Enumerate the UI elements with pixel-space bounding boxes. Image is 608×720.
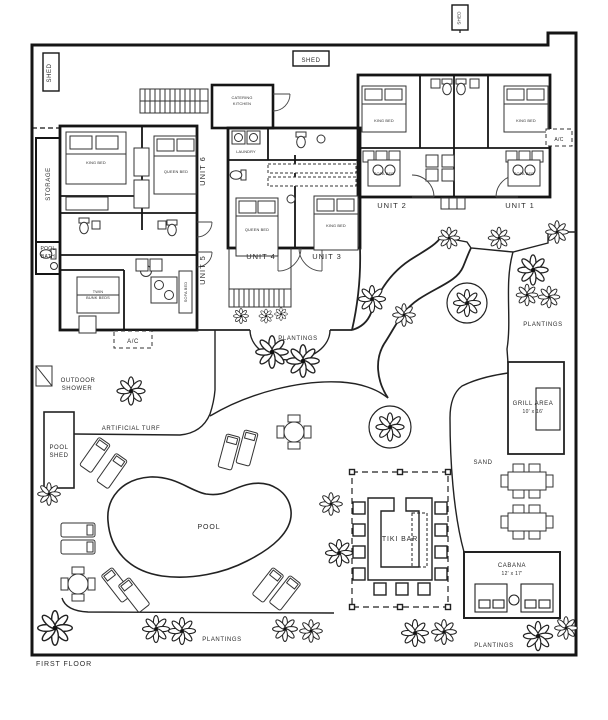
lounger-icon [61,540,95,554]
king-bed-label-u1: KING BED [516,118,536,123]
cabana-structure [464,552,560,618]
bar-stool [353,524,365,536]
floor-plan-page: SHED SHED SHED CATERING KITCHEN STORAGE … [0,0,608,720]
flower-icon [143,616,170,643]
bar-stool [418,583,430,595]
toilet-icon [442,79,452,95]
first-floor-title: FIRST FLOOR [36,661,92,668]
pool-bath-label-2: BATH [41,254,55,260]
plantings-label-center: PLANTINGS [278,336,317,342]
closet-rod [268,177,356,186]
lounger-icon [61,523,95,537]
flower-icon [38,483,61,506]
plantings-label-bottom-center: PLANTINGS [202,637,241,643]
pool-bath-label-1: POOL [40,246,55,252]
sink-icon [317,135,325,143]
unit-6-label: UNIT 6 [198,156,207,186]
artificial-turf-label: ARTIFICIAL TURF [102,426,161,432]
side-table [509,595,519,605]
flower-icon [555,617,578,640]
sofa-bed-label-u1: SOFA BED [514,171,534,176]
tree-flower-icon [376,413,404,441]
flower-icon [359,286,386,313]
sink-icon [51,263,58,270]
plantings-label-bottom-right: PLANTINGS [474,643,513,649]
bar-stool [435,502,447,514]
toilet-icon [79,218,89,234]
flower-icon [300,620,323,643]
bar-stool [435,568,447,580]
bar-stool [435,546,447,558]
bunk-bed-label-2: BUNK BEDS [86,295,110,300]
round-table-icon [277,415,311,449]
table [151,277,177,303]
flower-icon [326,540,353,567]
catering-kitchen-label-1: CATERING [231,95,252,100]
bar-stool [353,568,365,580]
bar-stool [374,583,386,595]
flower-icon [38,611,73,646]
flower-icon [320,493,343,516]
flower-icon [117,377,145,405]
bar-stool [353,546,365,558]
toilet-icon [230,170,246,180]
lounger-icon [236,430,258,466]
dresser [66,197,108,210]
tree-flower-icon [454,290,481,317]
cabana-dims-label: 12' x 17' [501,571,522,577]
flower-icon [402,620,429,647]
ac-label-left: A/C [127,339,139,345]
lounger-icon [218,434,240,470]
shed-top-label: SHED [301,58,320,64]
ac-label-right: A/C [554,137,563,143]
flower-icon [438,227,460,249]
walkway-edge-b [378,248,471,398]
catering-kitchen-room [212,85,273,128]
flower-icon [393,304,416,327]
porch-steps [441,198,465,209]
pool-shed-label-2: SHED [49,453,68,459]
laundry-label: LAUNDRY [236,149,256,154]
walkway-arc [210,382,388,416]
cabana-label: CABANA [498,563,526,569]
sand-label: SAND [473,460,492,466]
flower-icon [518,255,548,285]
dining-table-icon [501,464,553,498]
grill-dims-label: 10' x 16' [522,409,543,415]
flower-icon [538,286,560,308]
bar-stool [435,524,447,536]
flower-icon [233,308,248,323]
closet-rod [268,164,356,173]
unit-4-label: UNIT 4 [246,252,276,261]
plantings-label-right: PLANTINGS [523,322,562,328]
flower-icon [259,309,273,323]
tiki-bar-label: TIKI BAR [382,536,418,543]
catering-kitchen-label-2: KITCHEN [233,101,251,106]
pool-shed-label-1: POOL [49,445,68,451]
dining-table-icon [501,505,553,539]
flower-icon [169,618,196,645]
toilet-icon [456,79,466,95]
flower-icon [287,345,319,377]
bar-stool [396,583,408,595]
grill-area-label: GRILL AREA [513,401,554,407]
queen-bed-label-u4: QUEEN BED [245,227,269,232]
flower-icon [488,227,510,249]
bunk-bed-label-1: TWIN [93,289,104,294]
toilet-icon [296,132,306,148]
king-bed-label-u3: KING BED [326,223,346,228]
flower-icon [523,621,552,650]
stairs [140,89,208,113]
king-bed-label-u2: KING BED [374,118,394,123]
bar-stool [353,502,365,514]
flower-icon [432,620,457,645]
flower-icon [516,284,538,306]
flower-icon [275,308,288,321]
round-table-icon [61,567,95,601]
plantings-strip-edge [62,598,334,613]
shed-right-label: SHED [457,11,462,25]
sofa-bed-label-u2: SOFA BED [374,171,394,176]
floor-plan: SHED SHED SHED CATERING KITCHEN STORAGE … [0,0,608,720]
outdoor-shower [36,366,52,386]
outdoor-shower-label-2: SHOWER [62,386,93,392]
unit-1-label: UNIT 1 [505,201,535,210]
pool-label: POOL [197,524,220,531]
flower-icon [273,617,298,642]
planting-bed-right-edge [507,252,513,363]
queen-bed-label-u6: QUEEN BED [164,169,188,174]
toilet-icon [167,220,177,236]
unit-2-label: UNIT 2 [377,201,407,210]
storage-label: STORAGE [46,167,52,200]
king-bed-label-u6: KING BED [86,160,106,165]
unit-3-label: UNIT 3 [312,252,342,261]
shed-left-label: SHED [47,63,53,82]
sofa-bed-label-u5: SOFA BED [183,282,188,302]
unit-5-label: UNIT 5 [198,255,207,285]
outdoor-shower-label-1: OUTDOOR [61,378,96,384]
flower-icon [546,221,569,244]
